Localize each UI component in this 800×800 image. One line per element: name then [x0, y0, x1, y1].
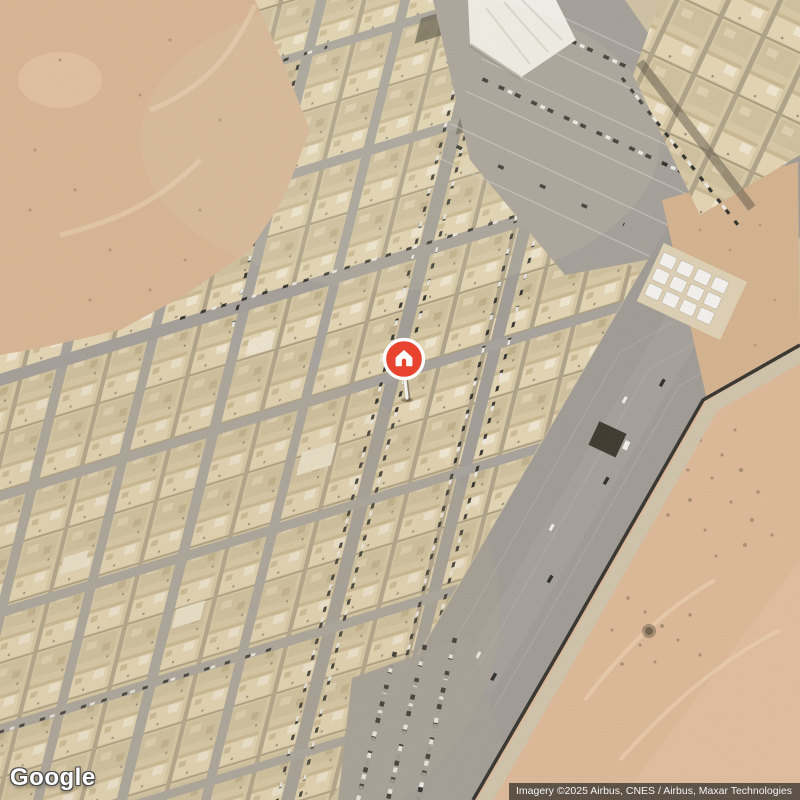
marker-circle: [385, 340, 424, 379]
satellite-imagery: [0, 0, 800, 800]
map-viewport[interactable]: Google Imagery ©2025 Airbus, CNES / Airb…: [0, 0, 800, 800]
google-logo[interactable]: Google: [10, 764, 96, 792]
satellite-grain: [0, 0, 800, 800]
map-attribution: Imagery ©2025 Airbus, CNES / Airbus, Max…: [509, 783, 800, 800]
